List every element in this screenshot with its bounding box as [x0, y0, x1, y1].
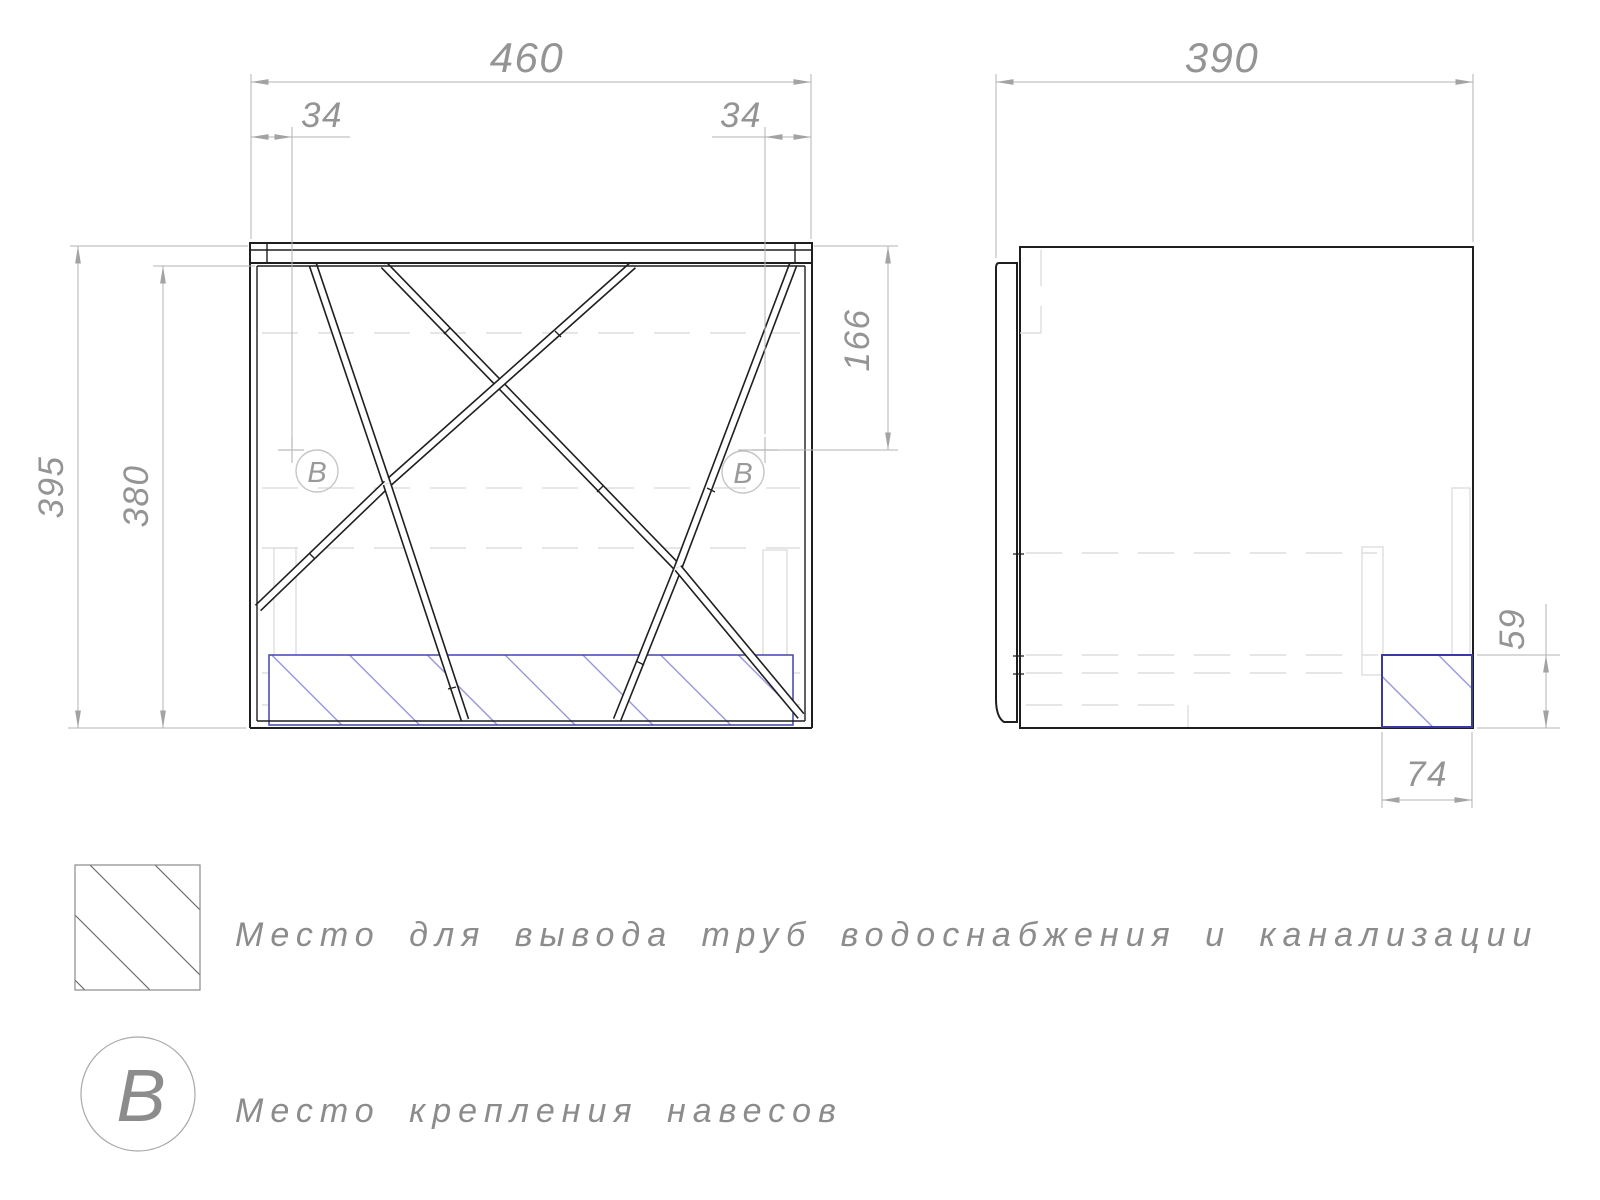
legend-hatch-swatch: [75, 865, 200, 990]
dim-cutout-height: 59: [1493, 608, 1532, 650]
dim-cutout-width: 74: [1406, 755, 1448, 794]
hidden-bracket: [274, 548, 296, 663]
legend: Место для вывода труб водоснабжения и ка…: [75, 865, 1538, 1151]
dim-offset-left: 34: [301, 96, 343, 135]
dim-height-outer: 395: [32, 456, 71, 519]
front-dimensions: 460 34 34 395 380 166: [32, 34, 898, 728]
dim-mount-height: 166: [838, 309, 877, 372]
legend-marker-symbol: B: [116, 1054, 165, 1137]
marker-b-left: B: [307, 457, 326, 489]
pipe-cutout-area-front: [269, 655, 793, 725]
dim-width: 460: [490, 34, 565, 81]
hidden-bracket: [763, 550, 787, 657]
drawing-page: B B 460 34 34: [0, 0, 1600, 1200]
technical-drawing: B B 460 34 34: [0, 0, 1600, 1200]
mount-marker-right: B: [722, 437, 778, 493]
front-view: B B 460 34 34: [32, 34, 898, 728]
pipe-cutout-area-side: [1382, 655, 1472, 727]
dim-depth: 390: [1185, 34, 1260, 81]
front-hidden-lines: [262, 333, 800, 705]
mount-marker-left: B: [278, 437, 338, 492]
marker-b-right: B: [733, 458, 752, 490]
legend-marker-label: Место крепления навесов: [235, 1092, 843, 1130]
legend-hatch-label: Место для вывода труб водоснабжения и ка…: [235, 916, 1538, 954]
dim-offset-right: 34: [720, 96, 762, 135]
cabinet-side-door: [996, 263, 1017, 722]
dim-height-inner: 380: [117, 465, 156, 528]
side-view: 390 59 74: [996, 34, 1560, 808]
